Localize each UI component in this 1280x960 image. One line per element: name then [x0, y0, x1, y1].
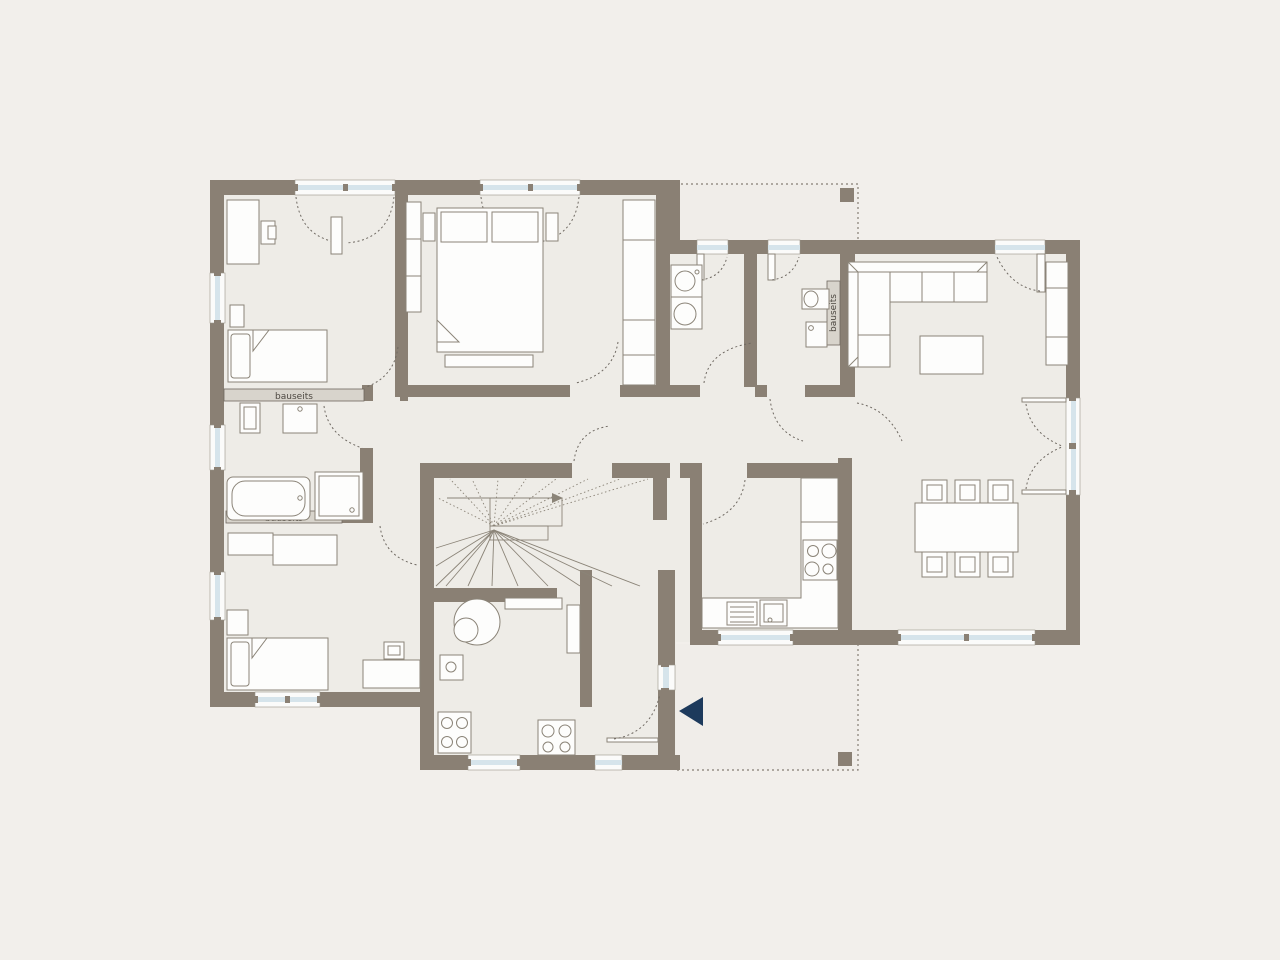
shelf-top	[505, 598, 562, 609]
nightstand	[227, 610, 248, 635]
floor	[424, 400, 676, 762]
bed-bench	[445, 355, 533, 367]
wall	[210, 692, 255, 707]
window-vestibule-bottom	[466, 755, 522, 770]
bauseits-label: bauseits	[275, 392, 313, 402]
desk-chair-back	[388, 646, 400, 655]
window-bedroom3-left	[210, 570, 225, 622]
wall	[1066, 495, 1080, 645]
wall	[320, 692, 434, 707]
floor-plan-svg: bauseits bauseits bauseits	[0, 0, 1280, 960]
wc-sink	[806, 322, 827, 347]
bauseits-label: bauseits	[829, 294, 839, 332]
wall	[210, 323, 224, 425]
appliance-four-ring-left	[438, 712, 471, 753]
wall	[395, 385, 570, 397]
nightstand-left	[423, 213, 435, 241]
wall	[805, 385, 855, 397]
desk-chair-back	[268, 226, 276, 239]
wall	[690, 463, 702, 640]
desk	[363, 660, 420, 688]
wall	[656, 385, 700, 397]
wall	[210, 470, 224, 572]
window-bedroom1-left	[210, 271, 225, 325]
wall	[210, 180, 224, 273]
wall	[520, 755, 595, 770]
wall	[420, 755, 468, 770]
wall	[620, 385, 656, 397]
dining-chairs-bottom	[922, 552, 1013, 577]
dining-chairs-top	[922, 480, 1013, 503]
terrace-bottom	[676, 644, 858, 770]
terrace-post-bottom	[838, 752, 852, 766]
room-utility	[671, 265, 702, 329]
room-dining	[915, 480, 1018, 577]
nightstand	[230, 305, 244, 327]
washbasin	[283, 404, 317, 433]
nightstand-right	[546, 213, 558, 241]
wall	[656, 240, 670, 397]
wall	[728, 240, 768, 254]
coffee-table	[920, 336, 983, 374]
wall	[658, 570, 675, 665]
dresser	[331, 217, 342, 254]
wardrobe-deep	[273, 535, 337, 565]
wall	[420, 463, 572, 478]
shower	[315, 472, 363, 520]
wall	[656, 180, 680, 246]
pillow-right	[492, 212, 538, 242]
wall	[658, 690, 675, 770]
wall	[395, 180, 480, 195]
small-unit	[440, 655, 463, 680]
pillow	[231, 334, 250, 378]
window-bathroom-left	[210, 423, 225, 472]
pillow-left	[441, 212, 487, 242]
toilet	[802, 289, 829, 309]
wall	[744, 254, 757, 387]
wall	[420, 463, 434, 770]
window-kitchen-bottom	[716, 630, 795, 645]
sideboard	[1046, 262, 1068, 365]
dryer	[671, 297, 702, 329]
wall	[580, 570, 592, 707]
wall	[800, 240, 995, 254]
pillow	[231, 642, 249, 686]
desk	[227, 200, 259, 264]
wall	[656, 240, 697, 254]
stove	[803, 540, 837, 580]
window-entry-side	[595, 755, 622, 770]
wall	[755, 385, 767, 397]
wall	[747, 463, 838, 478]
wall	[400, 389, 408, 401]
wall	[838, 458, 852, 645]
wall	[690, 630, 718, 645]
window-dining-bottom	[896, 630, 1037, 645]
floor-plan-page: bauseits bauseits bauseits	[0, 0, 1280, 960]
terrace-post-top	[840, 188, 854, 202]
shelf-right	[567, 605, 580, 653]
wardrobe	[406, 202, 421, 312]
window-bedroom3-bottom	[253, 692, 322, 707]
terrace-top	[676, 184, 858, 244]
wall	[793, 630, 898, 645]
wardrobe-low	[228, 533, 273, 555]
wall	[653, 463, 667, 520]
tall-wardrobe	[623, 200, 655, 385]
appliance-four-ring-right	[538, 720, 575, 755]
boiler-inner	[454, 618, 478, 642]
dining-table	[915, 503, 1018, 552]
